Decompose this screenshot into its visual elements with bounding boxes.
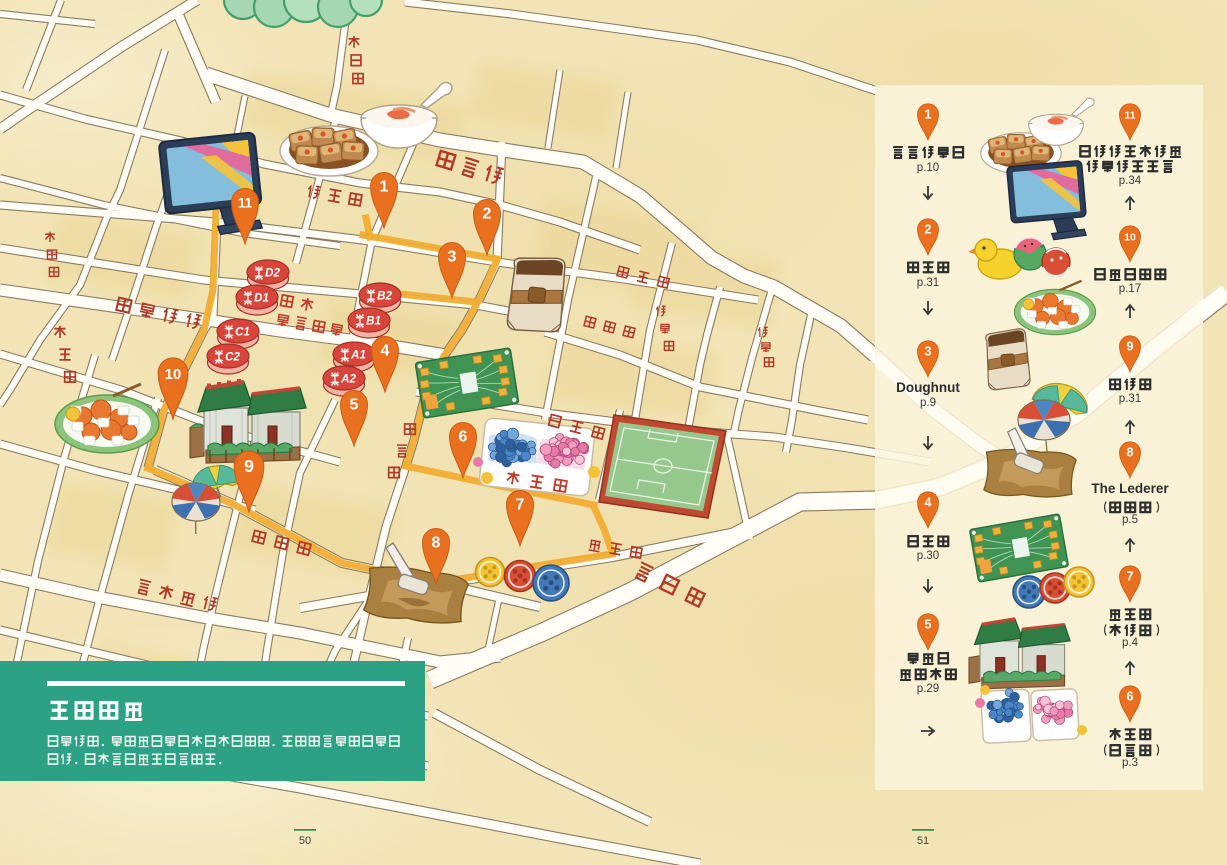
svg-text:p.5: p.5: [1122, 514, 1138, 526]
svg-text:3: 3: [925, 345, 932, 359]
svg-text:p.30: p.30: [917, 550, 939, 562]
svg-text:50: 50: [299, 835, 311, 847]
svg-text:1: 1: [380, 179, 389, 196]
svg-text:p.10: p.10: [917, 162, 939, 174]
svg-text:1: 1: [925, 108, 932, 122]
svg-text:B2: B2: [377, 291, 392, 303]
svg-text:2: 2: [483, 206, 492, 223]
svg-text:9: 9: [1127, 340, 1134, 354]
svg-text:A2: A2: [340, 374, 356, 386]
svg-text:p.4: p.4: [1122, 637, 1139, 649]
svg-text:5: 5: [350, 397, 359, 414]
svg-text:D1: D1: [254, 293, 269, 305]
svg-text:2: 2: [925, 223, 932, 237]
svg-text:D2: D2: [265, 268, 280, 280]
svg-text:p.31: p.31: [1119, 393, 1141, 405]
svg-text:7: 7: [516, 497, 525, 514]
svg-text:3: 3: [448, 249, 457, 266]
svg-text:10: 10: [165, 367, 182, 383]
svg-text:5: 5: [925, 618, 932, 632]
svg-text:8: 8: [432, 535, 441, 552]
svg-text:A1: A1: [350, 350, 366, 362]
svg-text:7: 7: [1127, 570, 1134, 584]
svg-text:B1: B1: [366, 316, 381, 328]
svg-text:9: 9: [244, 456, 254, 476]
svg-text:4: 4: [381, 343, 390, 360]
svg-text:6: 6: [1127, 690, 1134, 704]
svg-text:p.31: p.31: [917, 277, 939, 289]
svg-text:The Lederer: The Lederer: [1091, 481, 1169, 496]
svg-text:11: 11: [1124, 110, 1135, 122]
svg-text:51: 51: [917, 835, 929, 847]
svg-text:4: 4: [925, 496, 932, 510]
svg-text:8: 8: [1127, 446, 1134, 460]
svg-text:C2: C2: [225, 352, 240, 364]
svg-text:p.29: p.29: [917, 683, 939, 695]
svg-text:p.3: p.3: [1122, 757, 1138, 769]
svg-text:Doughnut: Doughnut: [896, 380, 960, 395]
svg-text:p.34: p.34: [1119, 175, 1142, 187]
svg-text:6: 6: [459, 429, 468, 446]
svg-text:p.17: p.17: [1119, 283, 1141, 295]
svg-text:p.9: p.9: [920, 397, 936, 409]
svg-text:C1: C1: [235, 327, 250, 339]
svg-text:11: 11: [238, 196, 253, 211]
svg-text:10: 10: [1124, 232, 1136, 244]
